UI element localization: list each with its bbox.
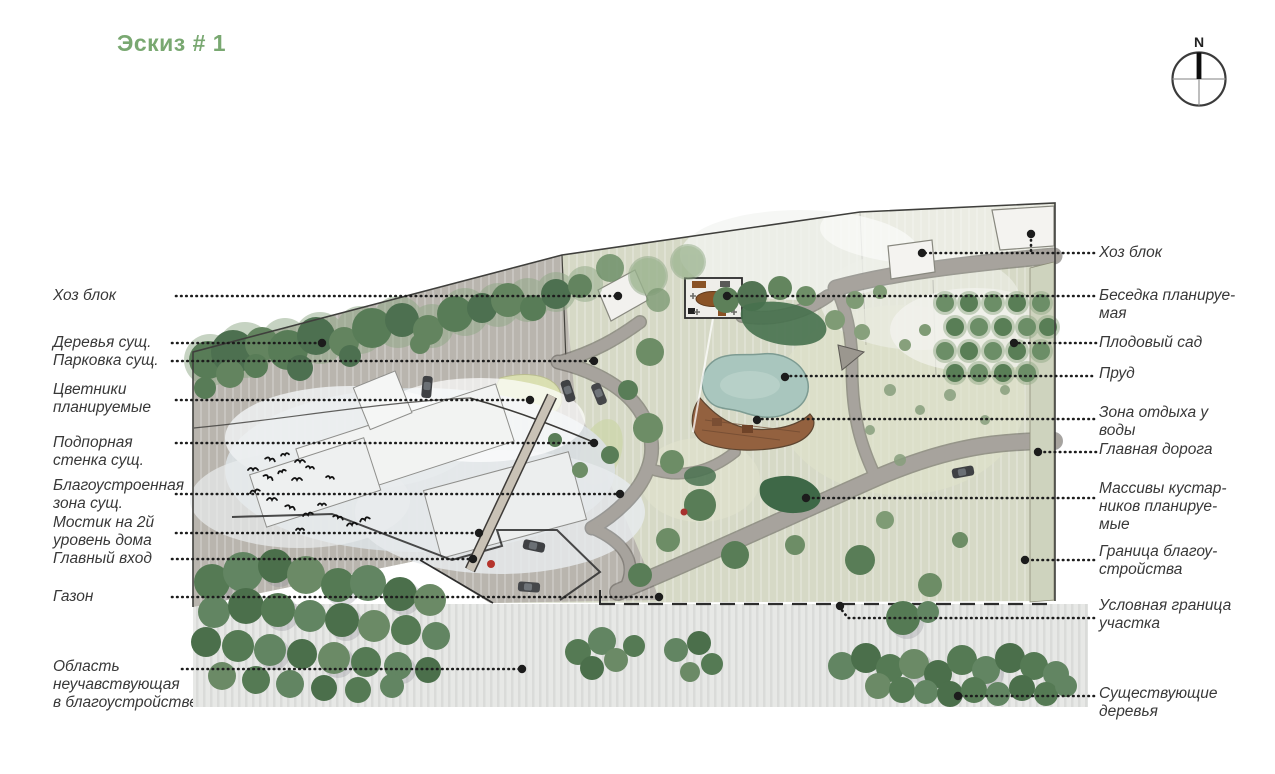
utility-building-right-1 <box>888 240 935 279</box>
compass-north-label: N <box>1194 34 1204 50</box>
utility-building-right-2 <box>992 206 1054 250</box>
compass: N <box>1169 30 1231 110</box>
person-marker <box>487 560 495 568</box>
compass-needle <box>1197 53 1202 80</box>
page: Эскиз # 1 <box>0 0 1275 774</box>
site-plan-drawing <box>0 0 1275 774</box>
